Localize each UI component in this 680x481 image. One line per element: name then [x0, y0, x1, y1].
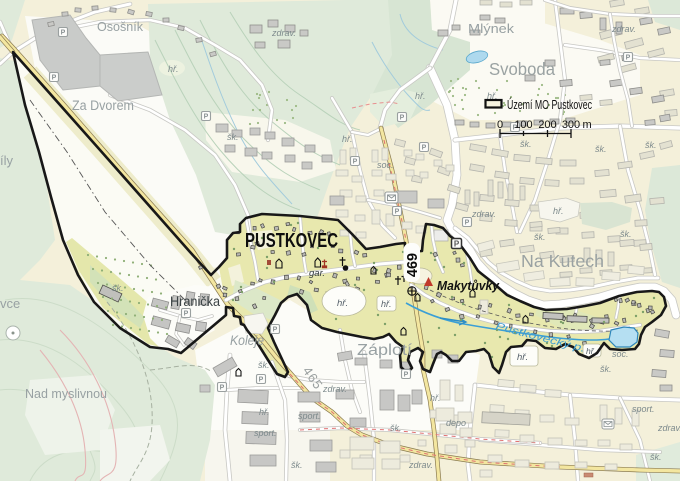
svg-text:šk.: šk.: [595, 144, 607, 154]
svg-text:P: P: [465, 220, 470, 227]
svg-text:sport.: sport.: [254, 428, 277, 438]
svg-text:P: P: [400, 115, 405, 122]
svg-text:P: P: [422, 145, 427, 152]
svg-text:sport.: sport.: [632, 404, 655, 414]
svg-text:hř.: hř.: [415, 91, 426, 101]
svg-text:hř.: hř.: [259, 407, 270, 417]
svg-text:P: P: [626, 55, 631, 62]
svg-text:Na Kutech: Na Kutech: [521, 251, 604, 271]
svg-text:P: P: [61, 30, 66, 37]
svg-text:hř.: hř.: [517, 352, 528, 363]
svg-text:gar.: gar.: [309, 268, 325, 279]
svg-text:šk.: šk.: [650, 452, 662, 462]
svg-text:šk.: šk.: [600, 364, 612, 374]
svg-text:šk.: šk.: [390, 423, 402, 433]
svg-text:zdrav.: zdrav.: [271, 28, 296, 38]
svg-text:Za Dvorem: Za Dvorem: [72, 98, 134, 113]
svg-text:469: 469: [405, 253, 421, 277]
svg-text:zdrav.: zdrav.: [471, 209, 496, 219]
svg-text:hř.: hř.: [553, 206, 564, 216]
svg-text:P: P: [184, 311, 189, 318]
svg-text:hř.: hř.: [586, 346, 596, 356]
svg-text:vce: vce: [0, 296, 20, 311]
svg-text:zdrav.: zdrav.: [611, 24, 636, 34]
svg-text:P: P: [404, 372, 409, 379]
svg-text:Makytůvky: Makytůvky: [437, 279, 500, 293]
svg-text:P: P: [395, 209, 400, 216]
svg-text:Záplotí: Záplotí: [357, 342, 413, 359]
svg-text:P: P: [259, 377, 264, 384]
svg-text:šk.: šk.: [620, 229, 632, 239]
svg-text:šk.: šk.: [258, 360, 270, 370]
svg-text:Nad myslivnou: Nad myslivnou: [25, 386, 107, 401]
svg-text:Hranička: Hranička: [170, 294, 220, 309]
svg-text:PUSTKOVEC: PUSTKOVEC: [245, 229, 338, 252]
svg-text:P: P: [273, 327, 278, 334]
svg-text:Osošník: Osošník: [97, 19, 143, 34]
svg-text:m: m: [583, 119, 592, 131]
svg-text:hř.: hř.: [381, 299, 392, 309]
svg-text:P: P: [353, 159, 358, 166]
svg-text:hř.: hř.: [337, 298, 348, 309]
svg-text:Území MO Pustkovec: Území MO Pustkovec: [507, 97, 592, 112]
svg-text:Mlýnek: Mlýnek: [468, 21, 515, 36]
svg-text:zdrav.: zdrav.: [322, 384, 347, 394]
svg-text:depo: depo: [446, 418, 466, 428]
svg-text:P: P: [454, 240, 460, 249]
svg-text:šk.: šk.: [520, 139, 532, 149]
svg-text:100: 100: [514, 119, 532, 131]
svg-text:P: P: [204, 114, 209, 121]
svg-text:hř.: hř.: [342, 134, 353, 144]
svg-text:šk.: šk.: [227, 132, 239, 142]
svg-text:soc.: soc.: [612, 349, 629, 359]
svg-text:íly: íly: [0, 153, 14, 168]
svg-text:P: P: [52, 75, 57, 82]
svg-text:šk.: šk.: [291, 460, 303, 470]
svg-text:soc.: soc.: [377, 160, 394, 170]
svg-text:zdrav.: zdrav.: [657, 423, 680, 433]
svg-text:zdrav.: zdrav.: [408, 460, 433, 470]
svg-text:hř.: hř.: [430, 393, 441, 403]
svg-text:P: P: [220, 385, 225, 392]
svg-text:200: 200: [538, 119, 556, 131]
svg-text:Svoboda: Svoboda: [489, 59, 555, 79]
svg-text:sport.: sport.: [298, 411, 321, 421]
svg-text:hř.: hř.: [168, 64, 179, 74]
svg-text:šk.: šk.: [112, 283, 124, 293]
svg-text:šk.: šk.: [645, 140, 657, 150]
svg-text:Koleje: Koleje: [230, 333, 264, 348]
svg-text:šk.: šk.: [534, 232, 546, 242]
